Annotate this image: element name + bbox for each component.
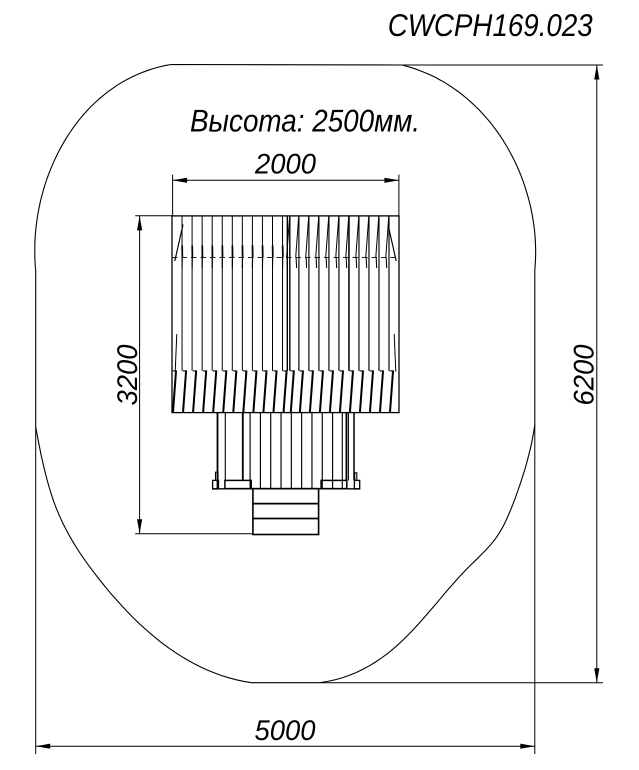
svg-text:CWCPH169.023: CWCPH169.023	[388, 7, 593, 43]
svg-text:3200: 3200	[112, 344, 144, 405]
svg-text:Высота: 2500мм.: Высота: 2500мм.	[190, 103, 420, 139]
svg-text:2000: 2000	[254, 148, 316, 180]
svg-text:5000: 5000	[255, 715, 316, 747]
svg-text:6200: 6200	[568, 344, 600, 405]
